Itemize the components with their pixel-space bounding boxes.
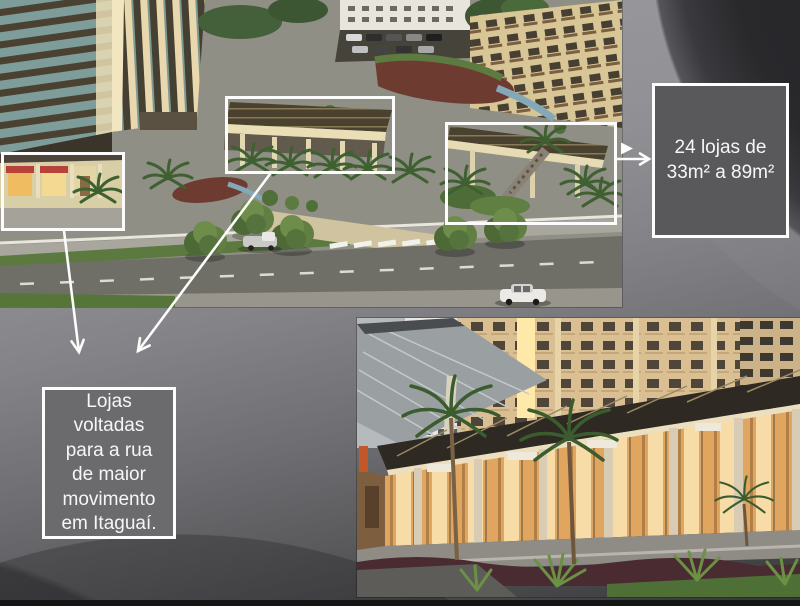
building-center-tower	[112, 0, 205, 132]
bottom-black-bar	[0, 600, 800, 606]
highlight-box-center-entrance	[225, 96, 395, 174]
parking-lot	[335, 0, 470, 62]
street-render-image	[357, 318, 800, 597]
white-building	[340, 0, 470, 30]
orange-sign	[359, 446, 368, 472]
highlight-box-left-storefront	[1, 152, 125, 231]
highlight-box-right-entrance	[445, 122, 617, 225]
arrowhead-triangle-icon	[621, 143, 633, 155]
aerial-render-image	[0, 0, 622, 307]
building-right-tower	[470, 0, 622, 128]
slide-canvas: Lojas voltadas para a rua de maior movim…	[0, 0, 800, 606]
callout-shops-street: Lojas voltadas para a rua de maior movim…	[42, 387, 176, 539]
street-render-scene	[357, 318, 800, 597]
callout-shop-count-text: 24 lojas de 33m² a 89m²	[667, 136, 775, 185]
callout-shop-count: 24 lojas de 33m² a 89m²	[652, 83, 789, 238]
callout-shops-street-text: Lojas voltadas para a rua de maior movim…	[61, 390, 156, 537]
